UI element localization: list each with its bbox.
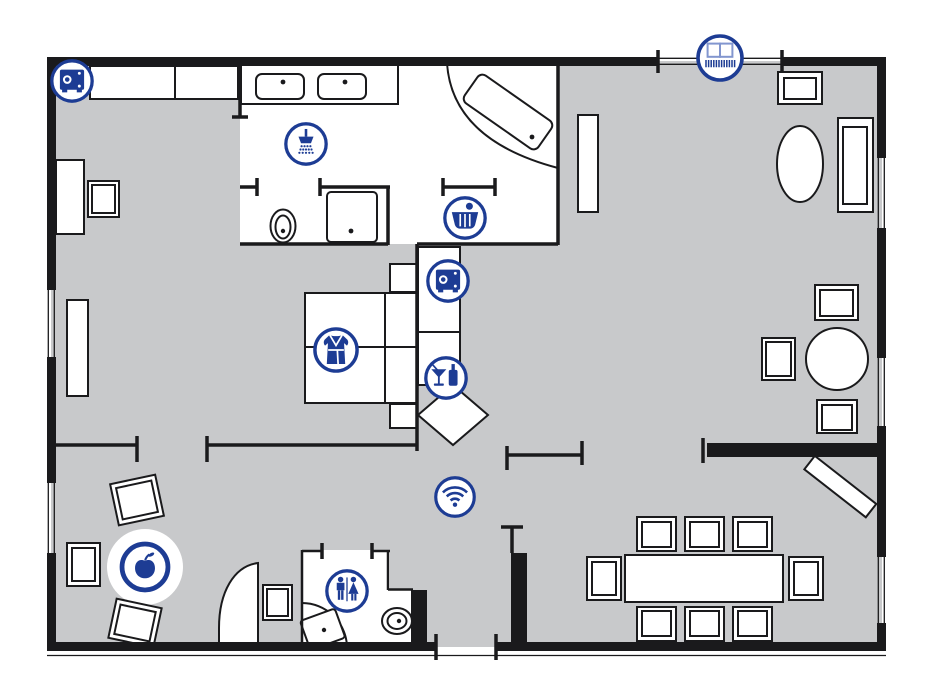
toilet-bowl [276,216,291,239]
safe-icon [52,61,92,101]
outer-wall-top [782,57,886,66]
outer-wall-bottom [495,642,886,651]
lounge-chair-seat [114,605,155,642]
dining-chair-seat [794,562,818,595]
toilet-drain [281,229,285,233]
side-chair-seat [766,342,791,376]
oval-table [777,126,823,202]
safe-icon [428,261,468,301]
dining-chair-seat [738,522,767,547]
shower-icon [286,124,326,164]
dining-table [625,555,783,602]
nightstand [390,404,417,428]
fruit-icon [122,544,168,590]
minibar-icon [426,358,466,398]
stool-seat [267,589,288,616]
side-chair-seat [820,290,853,316]
outer-wall-left [47,553,56,651]
outer-wall-top [47,57,658,66]
bathtub-drain [530,135,535,140]
shower-drain [349,229,354,234]
dining-chair-seat [642,522,671,547]
armchair-seat [784,78,816,99]
foyer-wall [511,553,527,648]
balcony-icon [698,36,742,80]
sink-drain [281,80,286,85]
dining-chair-seat [738,611,767,636]
sofa-seat [843,127,867,204]
desk [56,160,84,234]
outer-wall-right [877,57,886,158]
sink-drain [343,80,348,85]
floor-plan-canvas [0,0,933,700]
sink [256,74,304,99]
outer-wall-bottom [47,642,437,651]
lounge-chair-seat [116,481,158,520]
sideboard [67,300,88,396]
guest-wc-wall [411,590,427,648]
sink [318,74,366,99]
guest-wc-icon [327,571,367,611]
outer-wall-left [47,357,56,483]
dining-chair-seat [690,522,719,547]
lounge-chair-seat [72,548,95,581]
bathrobe-icon [315,329,357,371]
wardrobe [90,66,238,99]
shower-tray [327,192,377,242]
wifi-icon [436,478,475,517]
outer-wall-right [877,228,886,358]
floor-plan [0,0,933,700]
dining-chair-seat [592,562,616,595]
desk-chair-seat [92,185,115,213]
guest-toilet-drain [397,619,401,623]
side-chair-seat [822,405,852,430]
dining-chair-seat [642,611,671,636]
round-table [806,328,868,390]
corner-shower-drain [322,628,326,632]
console-table [578,115,598,212]
bathtub-icon [445,198,485,238]
living-dining-divider-wall [707,443,886,457]
dining-chair-seat [690,611,719,636]
nightstand [390,264,417,292]
